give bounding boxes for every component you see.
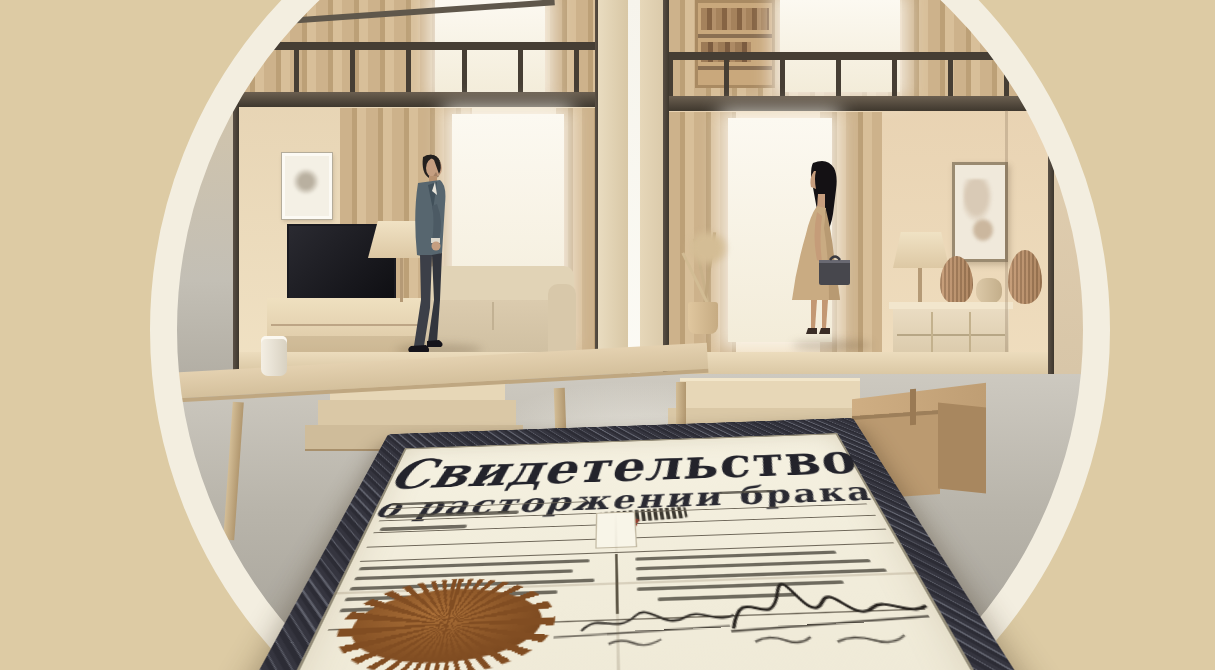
- right-table-lamp-shade: [893, 232, 949, 268]
- plant-pot: [688, 302, 718, 334]
- text-row: [359, 559, 590, 570]
- right-room-frame-right: [1048, 0, 1054, 377]
- right-room-frame-left: [663, 0, 669, 377]
- left-railing-bar: [238, 42, 598, 50]
- console-top: [889, 302, 1013, 309]
- art-blob-2: [971, 217, 995, 243]
- right-wall-edge-line: [1005, 110, 1008, 365]
- plant-foliage: [684, 228, 730, 268]
- left-room-frame-left: [233, 0, 239, 374]
- left-railing-posts: [238, 50, 598, 94]
- right-framed-art: [952, 162, 1008, 262]
- sofa-cushion-line: [492, 302, 494, 330]
- right-floor-slab: [663, 96, 1055, 111]
- left-floor-slab: [233, 92, 602, 107]
- console-drawer-line-h: [897, 334, 1005, 336]
- books-row-1: [701, 8, 769, 30]
- text-row: [636, 559, 872, 570]
- shelf-line: [698, 34, 772, 38]
- jar: [976, 278, 1002, 304]
- white-cup: [261, 336, 287, 376]
- right-table-lamp-pole: [918, 268, 922, 304]
- sketch-scribble: [291, 168, 321, 198]
- right-railing-bar: [668, 52, 1050, 60]
- left-gray-wall: [140, 0, 240, 670]
- signature-right: [714, 568, 959, 661]
- left-framed-sketch: [282, 153, 332, 219]
- woman-silhouette: [783, 158, 861, 348]
- right-railing-posts: [668, 60, 1050, 98]
- text-row: [635, 551, 837, 561]
- man-silhouette: [390, 150, 462, 354]
- sofa-armrest: [548, 284, 576, 352]
- illustration-stage: Свидетельство о расторжении брака: [0, 0, 1215, 670]
